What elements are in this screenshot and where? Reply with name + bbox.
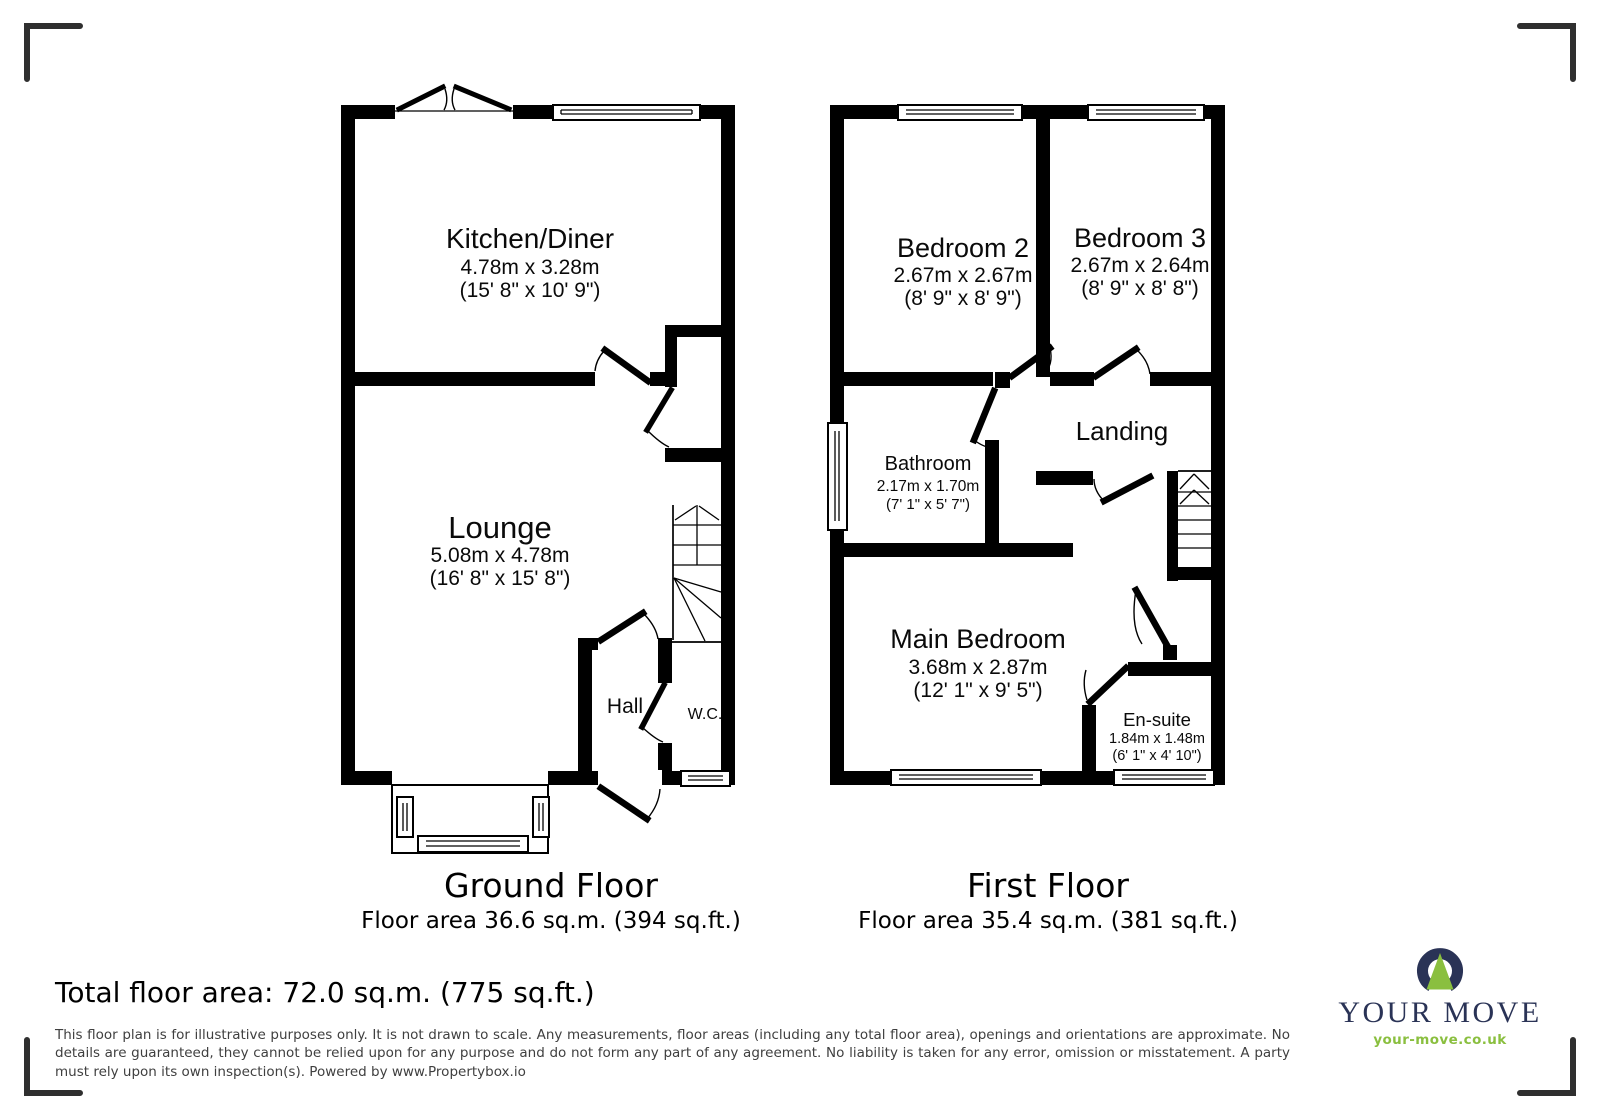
bathroom-window <box>828 423 847 530</box>
main-bedroom-metric: 3.68m x 2.87m <box>909 656 1048 679</box>
main-bedroom-window <box>891 770 1041 785</box>
floorplan-canvas: Kitchen/Diner 4.78m x 3.28m (15' 8" x 10… <box>0 0 1600 1119</box>
front-door <box>601 788 660 819</box>
first-floor-plan: Bedroom 2 2.67m x 2.67m (8' 9" x 8' 9") … <box>828 103 1238 934</box>
bedroom2-label: Bedroom 2 <box>897 233 1029 263</box>
hall-label: Hall <box>607 695 643 718</box>
ground-floor-title: Ground Floor <box>444 866 658 905</box>
ground-floor-area-label: Floor area 36.6 sq.m. (394 sq.ft.) <box>361 908 741 934</box>
bathroom-door <box>974 391 994 447</box>
wc-door <box>642 685 664 742</box>
landing-label: Landing <box>1076 416 1169 446</box>
lounge-label: Lounge <box>448 510 551 545</box>
staircase-ground <box>672 505 721 642</box>
kitchen-window <box>553 105 700 120</box>
ensuite-door <box>1084 668 1126 702</box>
kitchen-metric: 4.78m x 3.28m <box>461 256 600 279</box>
ground-floor-walls <box>341 105 735 785</box>
bedroom3-door <box>1096 349 1150 376</box>
ground-floor-labels: Kitchen/Diner 4.78m x 3.28m (15' 8" x 10… <box>430 223 723 723</box>
corner-mark-bottom-right <box>1520 1040 1573 1093</box>
corner-marks <box>27 26 1573 1093</box>
bedroom3-imperial: (8' 9" x 8' 8") <box>1081 277 1198 300</box>
bathroom-label: Bathroom <box>885 453 972 475</box>
kitchen-door <box>595 350 648 381</box>
wc-label: W.C. <box>688 706 723 723</box>
ground-floor-openings <box>392 103 730 788</box>
main-bedroom-door <box>1134 590 1168 647</box>
ensuite-window <box>1114 770 1214 785</box>
bedroom2-metric: 2.67m x 2.67m <box>894 264 1033 287</box>
logo-brand-text: YOUR MOVE <box>1338 996 1541 1029</box>
kitchen-label: Kitchen/Diner <box>446 223 614 254</box>
bay-window <box>392 785 549 853</box>
disclaimer-text: This floor plan is for illustrative purp… <box>55 1026 1290 1081</box>
corner-mark-top-right <box>1520 26 1573 79</box>
main-bedroom-label: Main Bedroom <box>890 624 1066 654</box>
wc-window <box>681 771 730 786</box>
lounge-imperial: (16' 8" x 15' 8") <box>430 567 571 590</box>
staircase-first-floor <box>1178 471 1211 548</box>
total-floor-area: Total floor area: 72.0 sq.m. (775 sq.ft.… <box>55 976 595 1009</box>
lounge-metric: 5.08m x 4.78m <box>431 544 570 567</box>
ensuite-metric: 1.84m x 1.48m <box>1109 731 1205 747</box>
main-bedroom-imperial: (12' 1" x 9' 5") <box>913 679 1042 702</box>
bedroom3-metric: 2.67m x 2.64m <box>1071 254 1210 277</box>
first-floor-title: First Floor <box>967 866 1129 905</box>
kitchen-imperial: (15' 8" x 10' 9") <box>460 279 601 302</box>
corner-mark-top-left <box>27 26 80 79</box>
ground-floor-plan: Kitchen/Diner 4.78m x 3.28m (15' 8" x 10… <box>341 87 741 934</box>
your-move-logo: YOUR MOVE your-move.co.uk <box>1338 953 1541 1048</box>
first-floor-area-label: Floor area 35.4 sq.m. (381 sq.ft.) <box>858 908 1238 934</box>
ensuite-label: En-suite <box>1123 709 1191 730</box>
bedroom3-label: Bedroom 3 <box>1074 223 1206 253</box>
bedroom2-imperial: (8' 9" x 8' 9") <box>904 287 1021 310</box>
floorplan-page: Kitchen/Diner 4.78m x 3.28m (15' 8" x 10… <box>0 0 1600 1119</box>
landing-stairs-door <box>1094 477 1150 501</box>
bedroom2-window <box>898 105 1022 120</box>
hall-door <box>601 613 658 640</box>
ensuite-imperial: (6' 1" x 4' 10") <box>1112 748 1201 764</box>
alcove-door <box>647 390 671 447</box>
bathroom-imperial: (7' 1" x 5' 7") <box>886 496 970 513</box>
bedroom3-window <box>1088 105 1204 120</box>
logo-website-text: your-move.co.uk <box>1373 1032 1507 1048</box>
bathroom-metric: 2.17m x 1.70m <box>877 478 980 495</box>
